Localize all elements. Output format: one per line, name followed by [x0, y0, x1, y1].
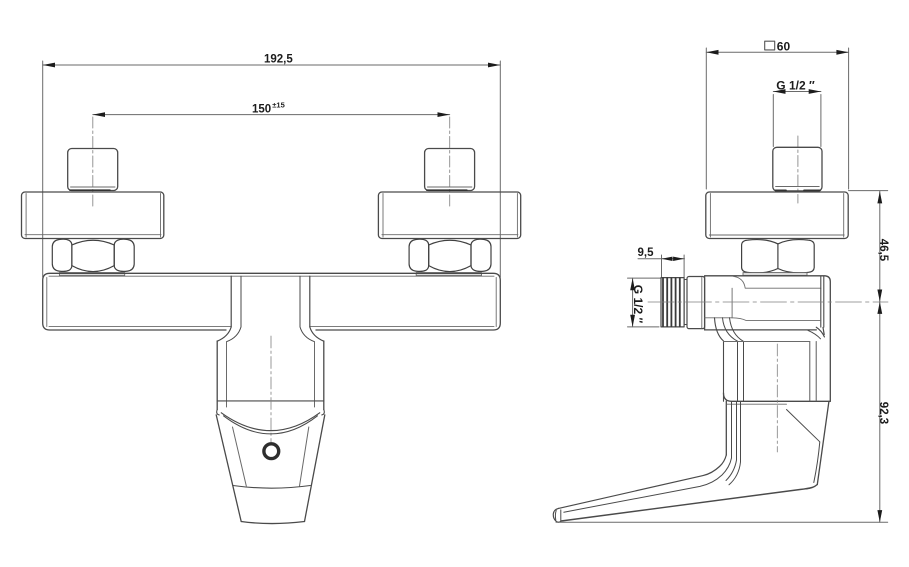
svg-text:46,5: 46,5 [877, 239, 889, 262]
svg-text:192,5: 192,5 [264, 54, 293, 66]
svg-text:60: 60 [777, 39, 791, 53]
svg-text:92,3: 92,3 [877, 402, 889, 424]
svg-text:G 1/2 ″: G 1/2 ″ [631, 285, 645, 324]
svg-text:9,5: 9,5 [638, 247, 655, 259]
svg-text:150: 150 [252, 103, 271, 115]
svg-text:±15: ±15 [272, 101, 284, 110]
svg-text:G 1/2 ″: G 1/2 ″ [776, 78, 815, 92]
